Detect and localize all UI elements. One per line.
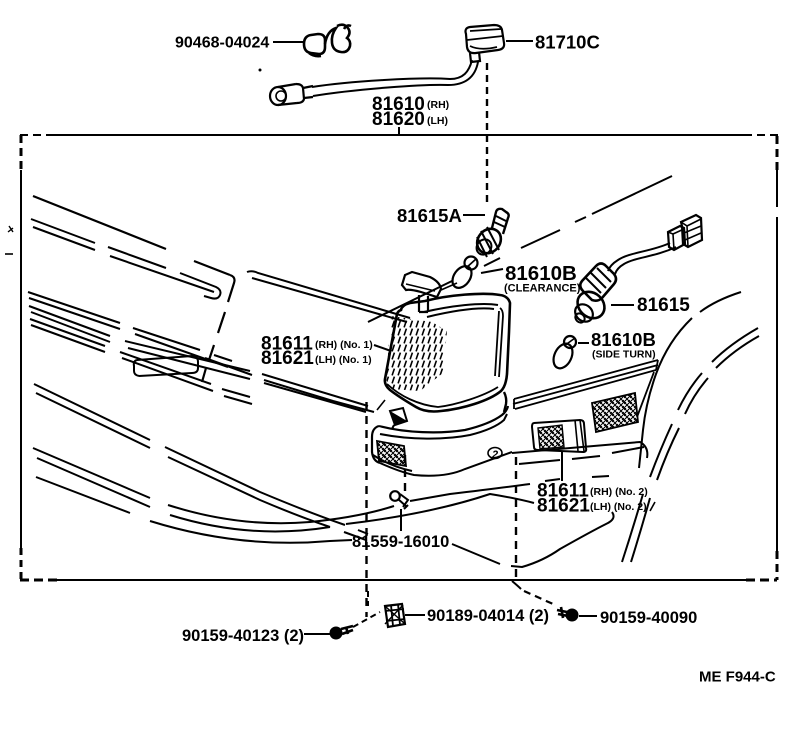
svg-text:81559-16010: 81559-16010 [352, 533, 449, 551]
svg-text:90159-40090: 90159-40090 [600, 609, 697, 627]
svg-text:(CLEARANCE): (CLEARANCE) [504, 283, 581, 295]
svg-text:81610B: 81610B [591, 329, 656, 350]
svg-text:(SIDE TURN): (SIDE TURN) [592, 349, 656, 361]
svg-text:81621: 81621 [537, 496, 590, 517]
svg-text:ME F944-C: ME F944-C [699, 669, 776, 686]
svg-text:90189-04014 (2): 90189-04014 (2) [427, 607, 549, 625]
svg-text:81615: 81615 [637, 295, 690, 316]
svg-text:81710C: 81710C [535, 32, 600, 53]
svg-text:90159-40123 (2): 90159-40123 (2) [182, 627, 304, 645]
svg-text:81620: 81620 [372, 109, 425, 130]
svg-text:2: 2 [491, 449, 498, 461]
svg-text:(LH): (LH) [427, 115, 448, 127]
svg-text:90468-04024: 90468-04024 [175, 35, 269, 52]
svg-text:81621: 81621 [261, 348, 314, 369]
svg-text:(RH): (RH) [427, 99, 449, 111]
svg-text:(LH) (No. 2): (LH) (No. 2) [590, 501, 647, 513]
svg-text:(LH) (No. 1): (LH) (No. 1) [315, 354, 372, 366]
svg-text:(RH) (No. 2): (RH) (No. 2) [590, 486, 648, 498]
svg-text:81615A: 81615A [397, 205, 462, 226]
svg-text:(RH) (No. 1): (RH) (No. 1) [315, 339, 373, 351]
